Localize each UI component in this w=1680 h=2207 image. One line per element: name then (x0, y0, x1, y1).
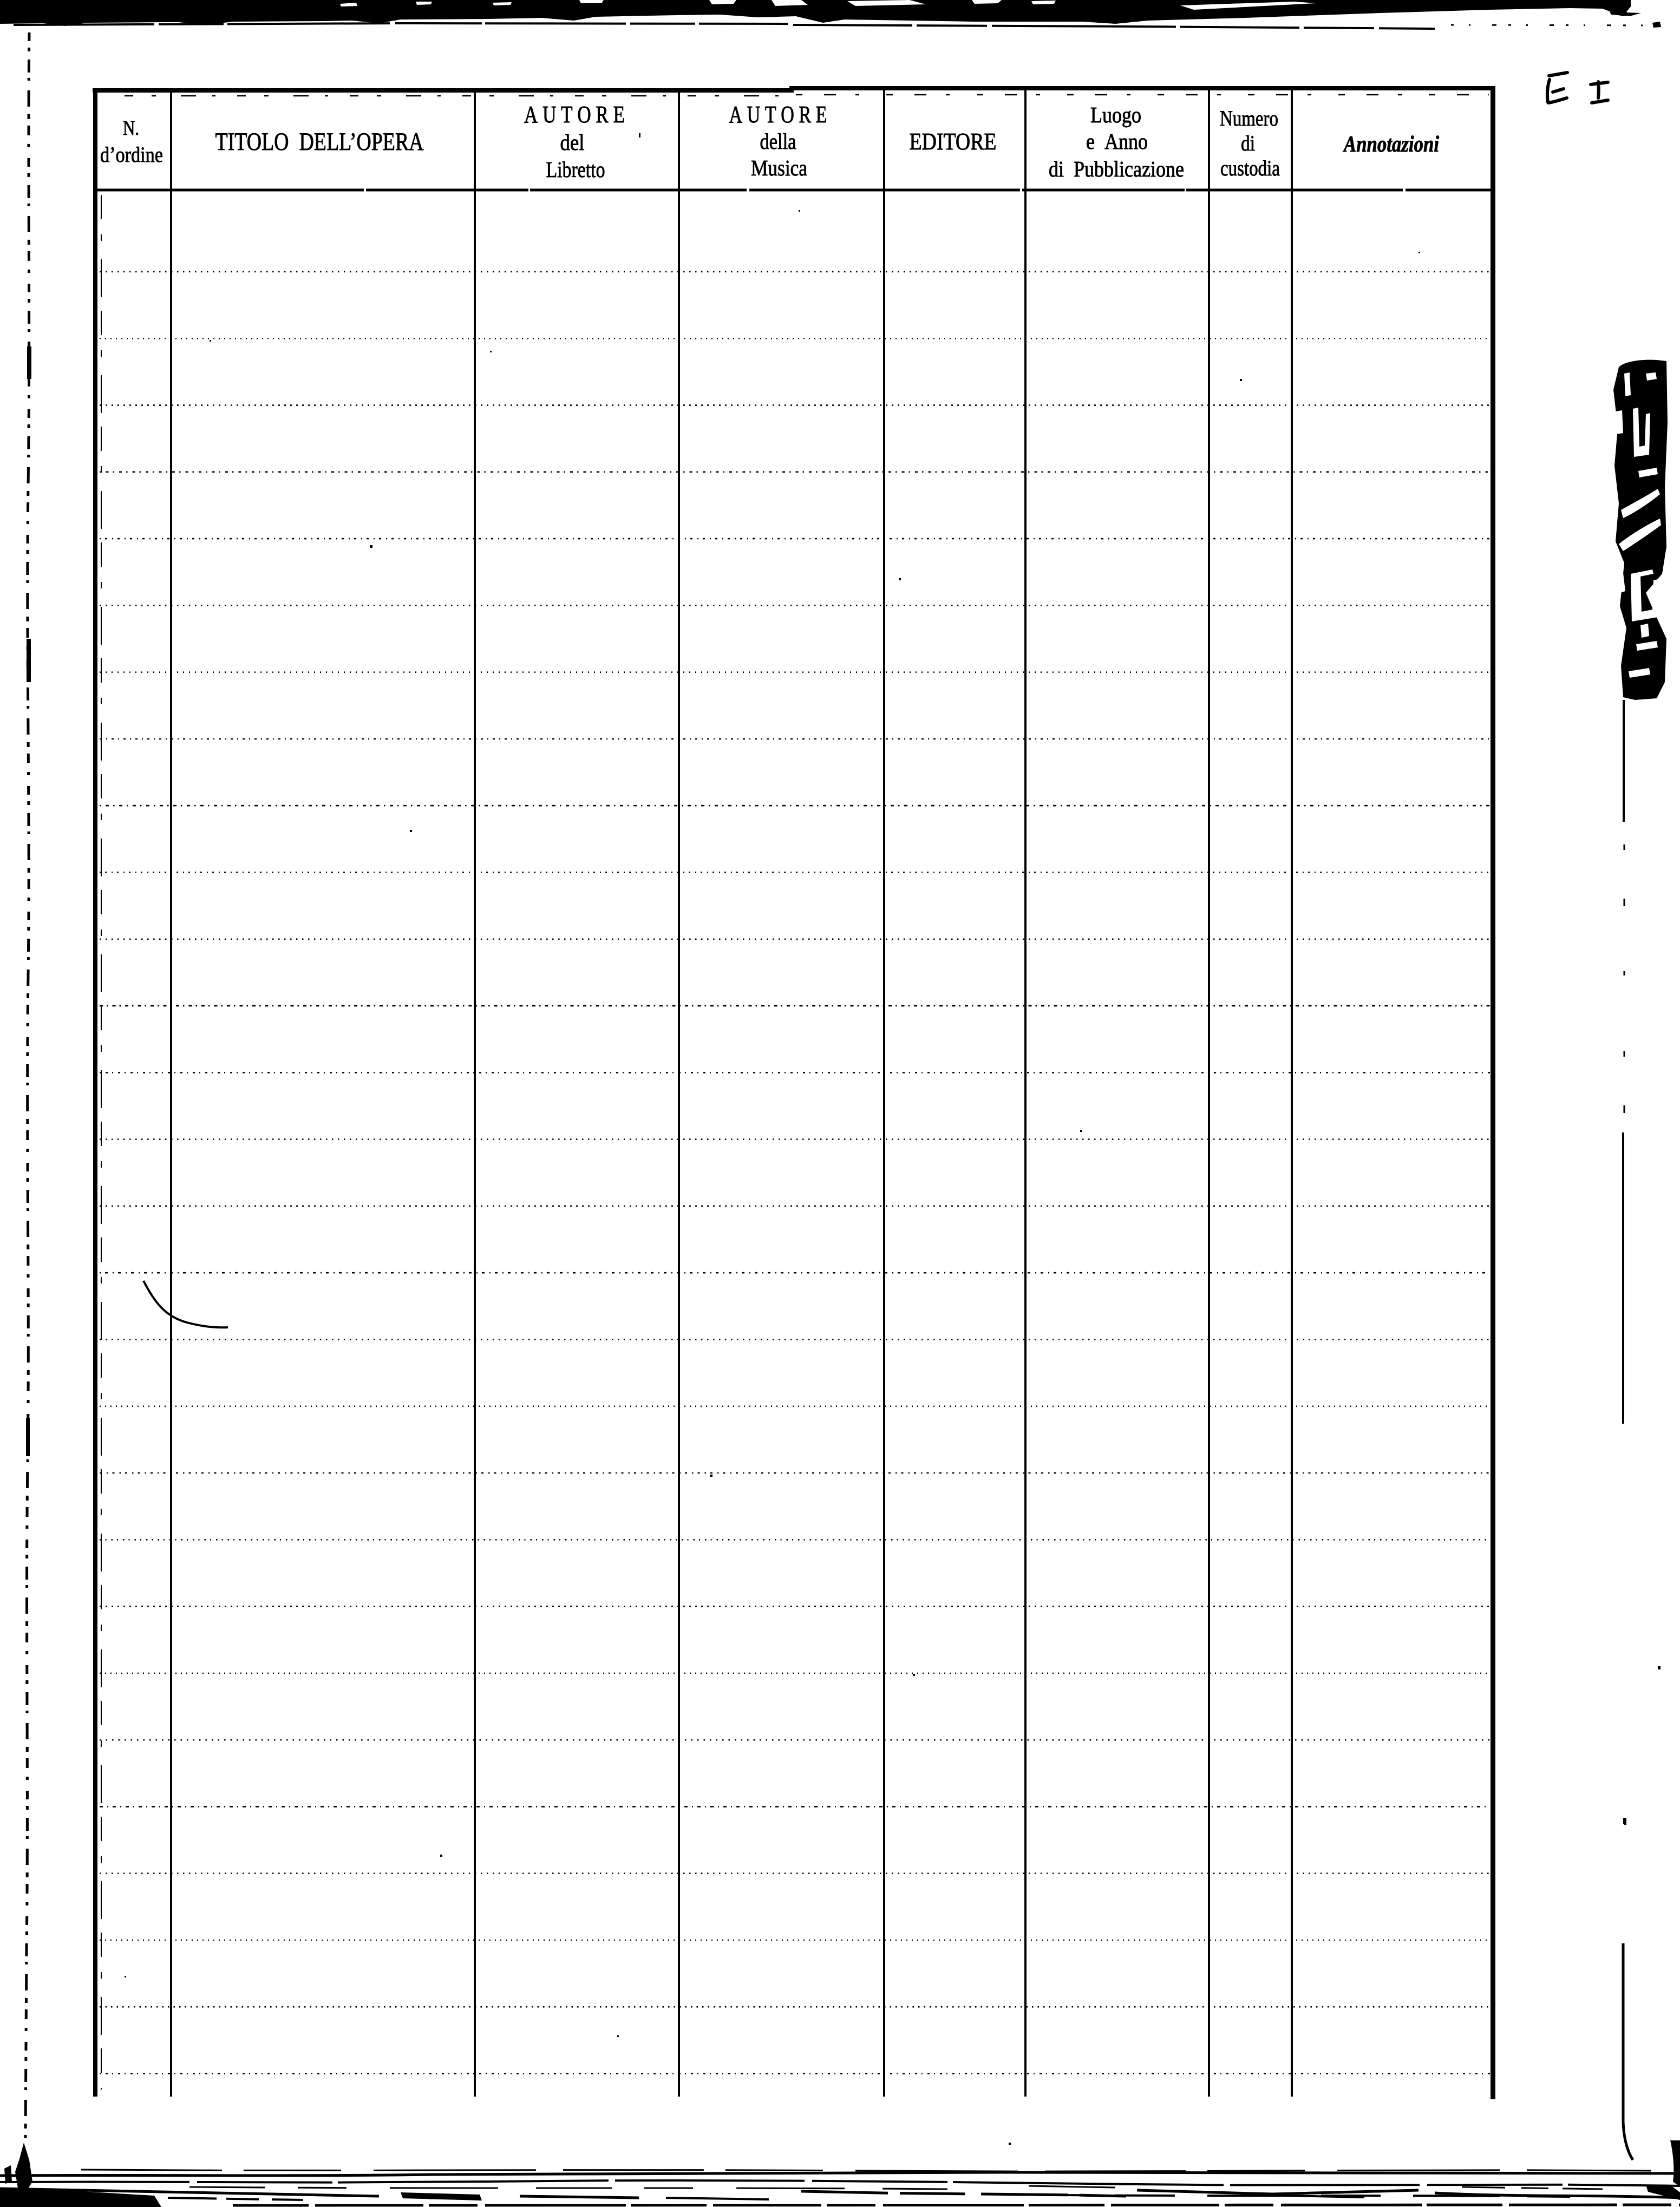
svg-text:di: di (1241, 131, 1255, 155)
svg-text:Luogo: Luogo (1090, 102, 1141, 127)
svg-text:di Pubblicazione: di Pubblicazione (1049, 156, 1184, 181)
svg-text:Annotazioni: Annotazioni (1343, 132, 1440, 157)
svg-text:A U T O R E: A U T O R E (729, 101, 827, 128)
svg-text:d’ordine: d’ordine (100, 142, 163, 167)
svg-text:Libretto: Libretto (546, 157, 605, 182)
svg-text:custodia: custodia (1220, 156, 1280, 180)
svg-text:A U T O R E: A U T O R E (524, 101, 625, 128)
svg-text:N.: N. (123, 117, 139, 140)
svg-text:Musica: Musica (751, 155, 807, 180)
svg-text:Numero: Numero (1220, 106, 1278, 130)
svg-text:e Anno: e Anno (1086, 129, 1148, 154)
svg-text:del: del (560, 130, 585, 155)
svg-text:della: della (760, 129, 796, 154)
svg-text:EDITORE: EDITORE (910, 128, 997, 155)
svg-text:TITOLO DELL’OPERA: TITOLO DELL’OPERA (215, 128, 424, 156)
